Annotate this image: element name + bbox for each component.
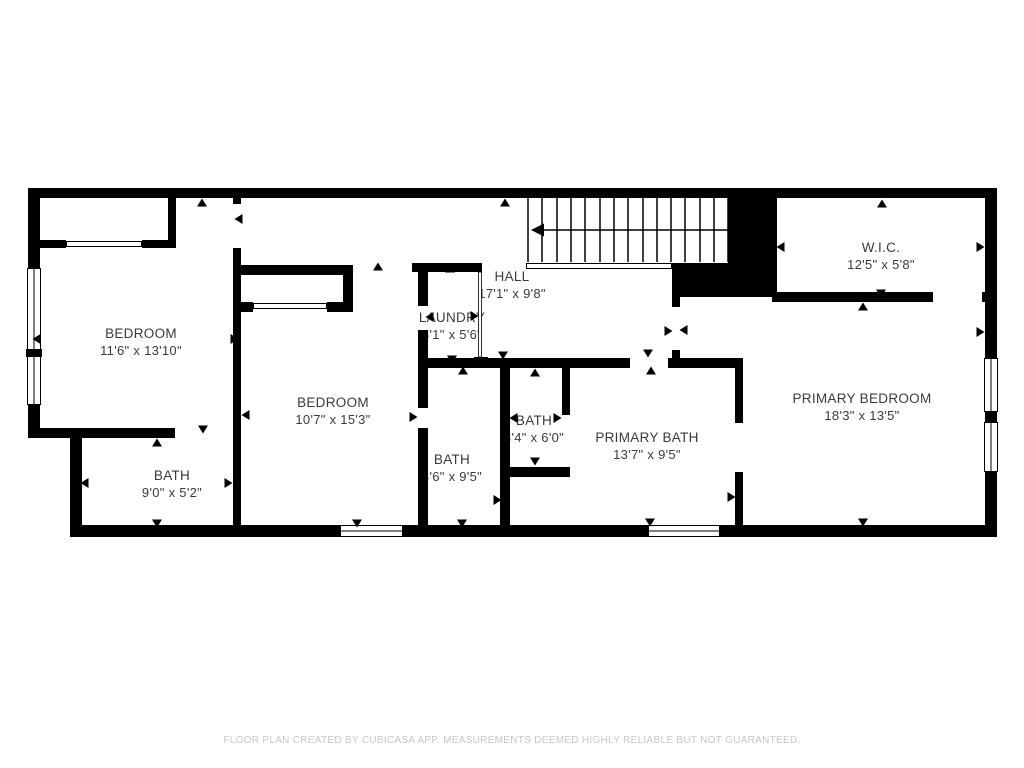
window-divider — [26, 349, 42, 357]
stairs-direction-arrow — [531, 224, 544, 237]
floor-plan-canvas: BEDROOM 11'6" x 13'10" BATH 9'0" x 5'2" … — [0, 0, 1024, 768]
walls-group — [28, 188, 997, 537]
windows-group — [28, 242, 998, 537]
floor-plan-drawing — [0, 0, 1024, 768]
disclaimer-text: FLOOR PLAN CREATED BY CUBICASA APP. MEAS… — [0, 735, 1024, 746]
stairs — [528, 198, 728, 262]
